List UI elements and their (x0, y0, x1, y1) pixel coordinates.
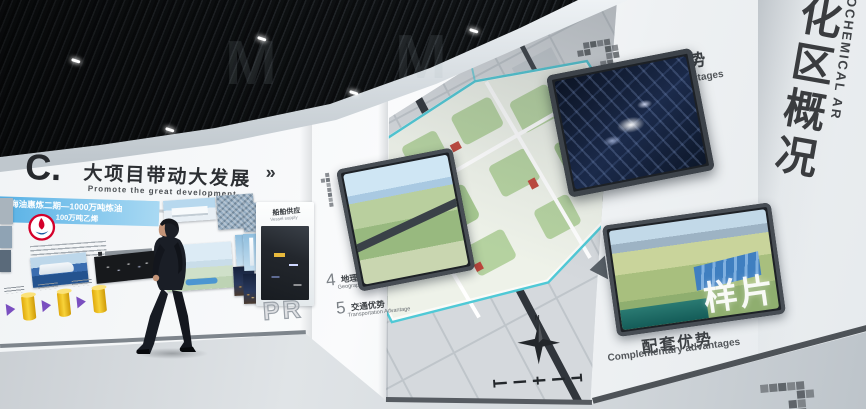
pixel-square (788, 400, 796, 408)
screen-content-night-city (554, 56, 707, 190)
pixel-square (613, 51, 619, 57)
pixel-square (806, 389, 814, 397)
yellow-cylinder (92, 286, 107, 313)
caption-lines (4, 286, 25, 294)
advantage-4-number: 4 (325, 270, 337, 291)
pixel-square (326, 183, 330, 187)
pixel-square (769, 384, 777, 392)
pixel-square (590, 41, 596, 47)
media-panel-screen (261, 226, 309, 300)
compass-rose-icon (517, 321, 560, 364)
pixel-square (329, 203, 333, 207)
media-panel-heading-en: Vessel supply (270, 215, 298, 222)
caption-lines (72, 279, 93, 287)
pixel-square (778, 383, 786, 391)
pixel-square (605, 46, 611, 52)
pixel-square (577, 50, 583, 56)
pixel-square (604, 39, 610, 45)
purple-arrow-icon (77, 296, 87, 309)
display-screen-landscape (336, 147, 475, 291)
pixel-square (584, 49, 590, 55)
purple-arrow-icon (6, 303, 16, 316)
yellow-cylinder (56, 290, 71, 317)
pixel-square (328, 193, 332, 197)
pixel-square (796, 381, 804, 389)
pixel-square (787, 382, 795, 390)
pixel-square (797, 390, 805, 398)
display-screen-night-render (546, 48, 715, 198)
pixel-numeral-3 (760, 380, 819, 409)
chevron-arrows-icon: » (265, 162, 276, 183)
pixel-square (606, 53, 612, 59)
map-scale-bar (494, 374, 581, 388)
outline-letters: PR (262, 295, 305, 327)
photo-edge-partial (0, 226, 12, 248)
arrow-left-icon (588, 256, 608, 282)
photo-edge-partial (0, 250, 11, 272)
ceiling-watermark: M (395, 22, 455, 93)
media-panel: 船舶供应 Vessel supply (256, 202, 314, 306)
compass-north-label: N (534, 315, 539, 322)
pixel-square (325, 173, 329, 177)
cnooc-logo (27, 213, 56, 242)
pixel-square (760, 384, 768, 392)
exhibition-hall-render: N M M C. 大项目带动大发展 Promote the great deve… (0, 0, 866, 409)
purple-arrow-icon (41, 299, 51, 312)
pixel-square (612, 45, 618, 51)
screen-content-aerial-landscape (343, 155, 468, 285)
caption-lines (38, 282, 59, 290)
advantage-item-1: 服务优势 Service advantage (320, 173, 335, 209)
photo-edge-partial (0, 198, 13, 224)
sample-watermark: 样片 (700, 262, 778, 321)
yellow-cylinder (21, 294, 36, 321)
cylinder-chart (4, 278, 107, 323)
pixel-square (583, 42, 589, 48)
pixel-square (327, 188, 331, 192)
pixel-numeral-1 (320, 173, 335, 209)
section-letter: C. (25, 146, 62, 189)
walking-person (134, 216, 208, 358)
advantage-5-number: 5 (335, 298, 347, 319)
pixel-square (797, 399, 805, 407)
pixel-square (326, 178, 330, 182)
ceiling-watermark: M (225, 28, 285, 99)
pixel-square (321, 178, 325, 182)
pixel-square (328, 198, 332, 202)
pixel-square (597, 40, 603, 46)
